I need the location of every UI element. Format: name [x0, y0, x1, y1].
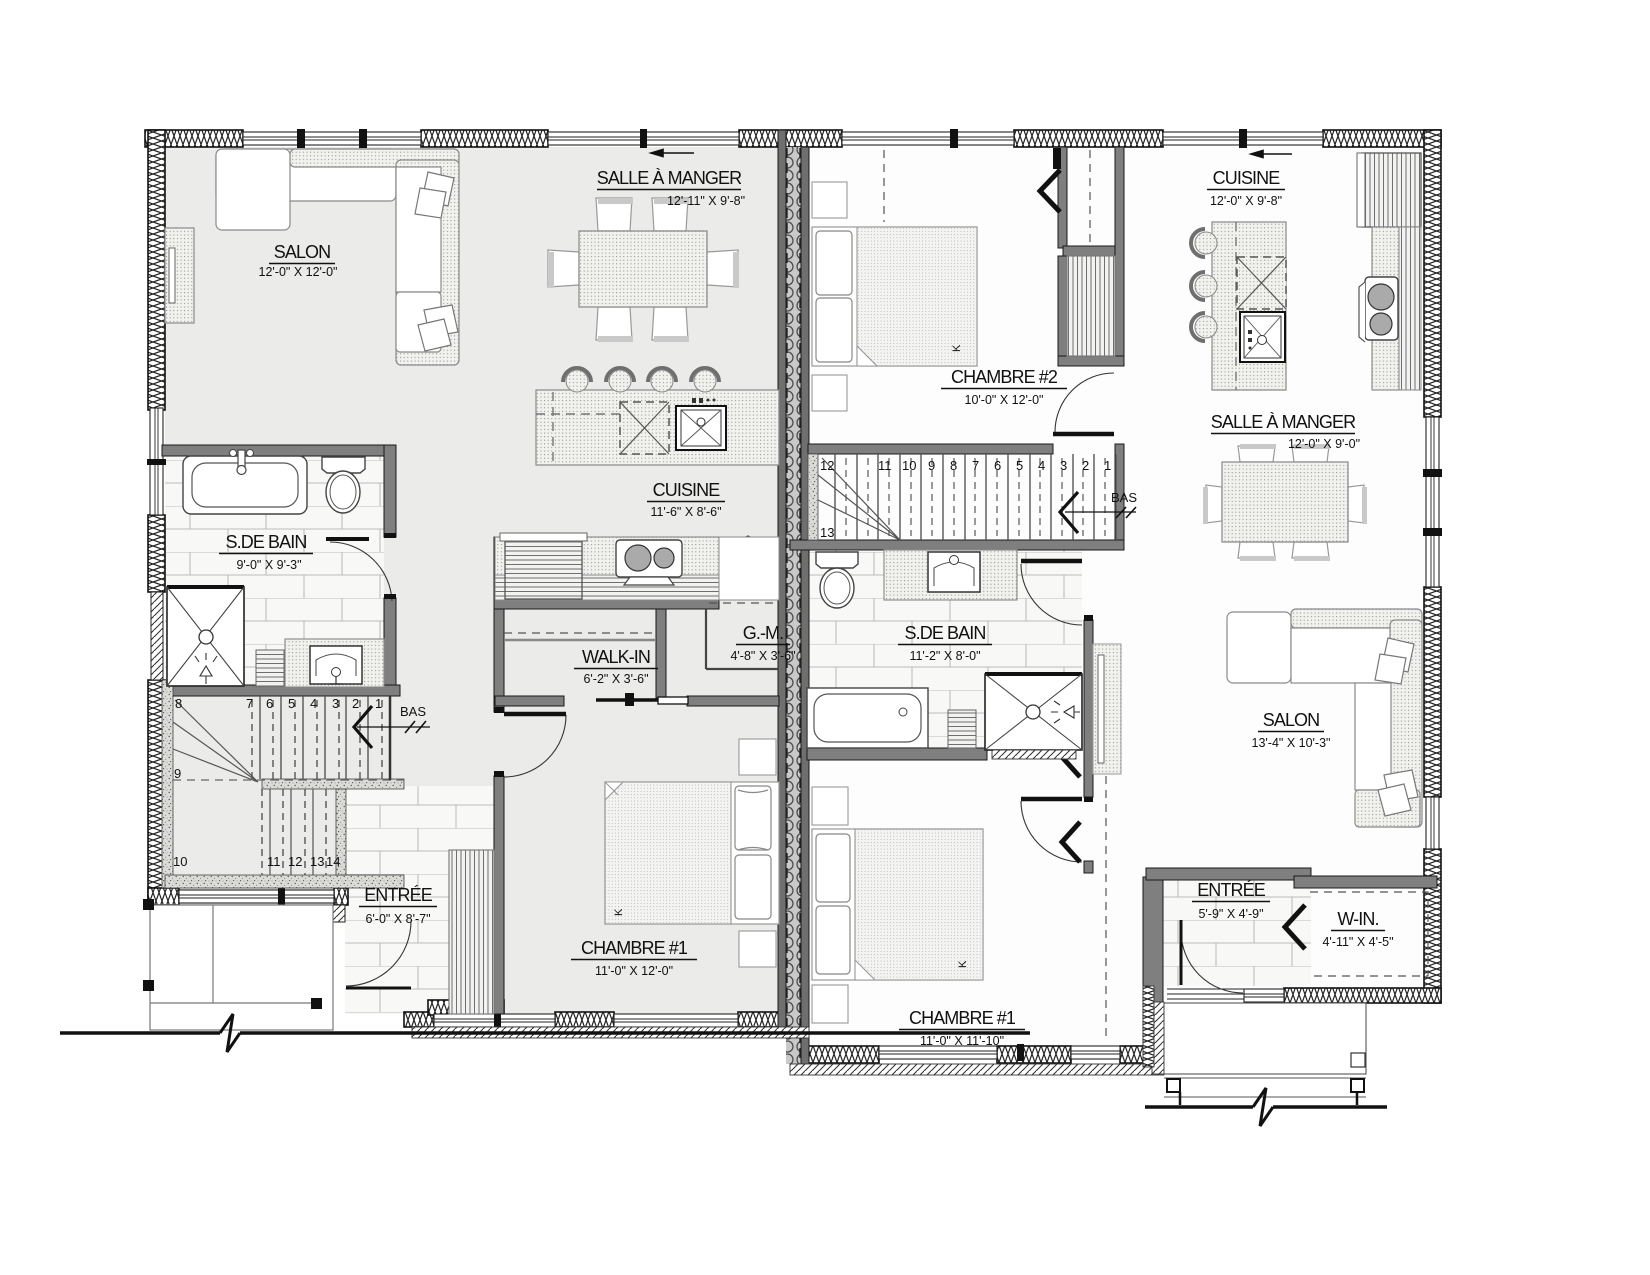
- svg-text:K: K: [957, 960, 969, 968]
- svg-text:6: 6: [266, 696, 273, 711]
- svg-text:S.DE BAIN: S.DE BAIN: [905, 623, 986, 643]
- svg-text:1: 1: [1104, 458, 1111, 473]
- svg-text:CHAMBRE #1: CHAMBRE #1: [581, 938, 688, 958]
- svg-text:9'-0" X 9'-3": 9'-0" X 9'-3": [236, 558, 301, 572]
- svg-text:11'-0" X 11'-10": 11'-0" X 11'-10": [920, 1034, 1004, 1048]
- svg-text:11: 11: [878, 458, 892, 473]
- svg-text:2: 2: [1082, 458, 1089, 473]
- svg-text:12: 12: [820, 458, 834, 473]
- svg-text:12'-0" X 9'-8": 12'-0" X 9'-8": [1210, 194, 1282, 208]
- svg-text:13: 13: [820, 525, 834, 540]
- svg-text:8: 8: [950, 458, 957, 473]
- svg-text:11'-0" X 12'-0": 11'-0" X 12'-0": [595, 964, 673, 978]
- svg-text:13: 13: [310, 854, 324, 869]
- svg-text:4'-8" X 3'-6": 4'-8" X 3'-6": [730, 649, 795, 663]
- svg-text:12'-0" X 9'-0": 12'-0" X 9'-0": [1288, 437, 1360, 451]
- svg-text:6'-2" X 3'-6": 6'-2" X 3'-6": [583, 672, 648, 686]
- svg-text:K: K: [613, 908, 625, 916]
- svg-text:WALK-IN: WALK-IN: [582, 647, 650, 667]
- svg-text:4: 4: [310, 696, 317, 711]
- svg-text:SALLE À MANGER: SALLE À MANGER: [1211, 412, 1356, 432]
- svg-text:13'-4" X 10'-3": 13'-4" X 10'-3": [1252, 736, 1331, 750]
- svg-text:5'-9" X 4'-9": 5'-9" X 4'-9": [1198, 907, 1263, 921]
- svg-text:BAS: BAS: [400, 704, 426, 719]
- svg-text:ENTRÉE: ENTRÉE: [364, 885, 433, 905]
- svg-text:6: 6: [994, 458, 1001, 473]
- svg-text:5: 5: [1016, 458, 1023, 473]
- svg-text:ENTRÉE: ENTRÉE: [1197, 880, 1266, 900]
- svg-text:11'-6" X 8'-6": 11'-6" X 8'-6": [650, 505, 721, 519]
- svg-text:S.DE BAIN: S.DE BAIN: [226, 532, 307, 552]
- svg-text:14: 14: [326, 854, 340, 869]
- svg-text:6'-0" X 8'-7": 6'-0" X 8'-7": [365, 912, 430, 926]
- svg-text:10: 10: [173, 854, 187, 869]
- svg-text:SALLE À MANGER: SALLE À MANGER: [597, 168, 742, 188]
- svg-text:11'-2" X 8'-0": 11'-2" X 8'-0": [909, 649, 980, 663]
- svg-text:3: 3: [332, 696, 339, 711]
- svg-text:7: 7: [246, 696, 253, 711]
- svg-text:1: 1: [375, 696, 382, 711]
- svg-text:12'-0" X 12'-0": 12'-0" X 12'-0": [259, 265, 338, 279]
- svg-text:K: K: [951, 344, 963, 352]
- svg-text:CUISINE: CUISINE: [653, 480, 721, 500]
- svg-text:G.-M.: G.-M.: [743, 623, 784, 643]
- svg-text:4'-11" X 4'-5": 4'-11" X 4'-5": [1322, 935, 1393, 949]
- svg-text:9: 9: [174, 766, 181, 781]
- svg-text:CUISINE: CUISINE: [1213, 168, 1281, 188]
- svg-text:CHAMBRE #2: CHAMBRE #2: [951, 367, 1058, 387]
- svg-text:W-IN.: W-IN.: [1337, 909, 1378, 929]
- svg-text:8: 8: [175, 696, 182, 711]
- svg-text:CHAMBRE #1: CHAMBRE #1: [909, 1008, 1016, 1028]
- svg-text:12: 12: [288, 854, 302, 869]
- svg-text:9: 9: [928, 458, 935, 473]
- svg-text:3: 3: [1060, 458, 1067, 473]
- svg-text:11: 11: [267, 854, 281, 869]
- svg-text:2: 2: [352, 696, 359, 711]
- svg-text:12'-11" X 9'-8": 12'-11" X 9'-8": [667, 194, 745, 208]
- svg-text:SALON: SALON: [1263, 710, 1320, 730]
- svg-text:7: 7: [972, 458, 979, 473]
- svg-text:5: 5: [288, 696, 295, 711]
- svg-text:10: 10: [902, 458, 916, 473]
- svg-text:BAS: BAS: [1111, 490, 1137, 505]
- svg-text:10'-0" X 12'-0": 10'-0" X 12'-0": [965, 393, 1044, 407]
- svg-text:SALON: SALON: [274, 242, 331, 262]
- svg-text:4: 4: [1038, 458, 1045, 473]
